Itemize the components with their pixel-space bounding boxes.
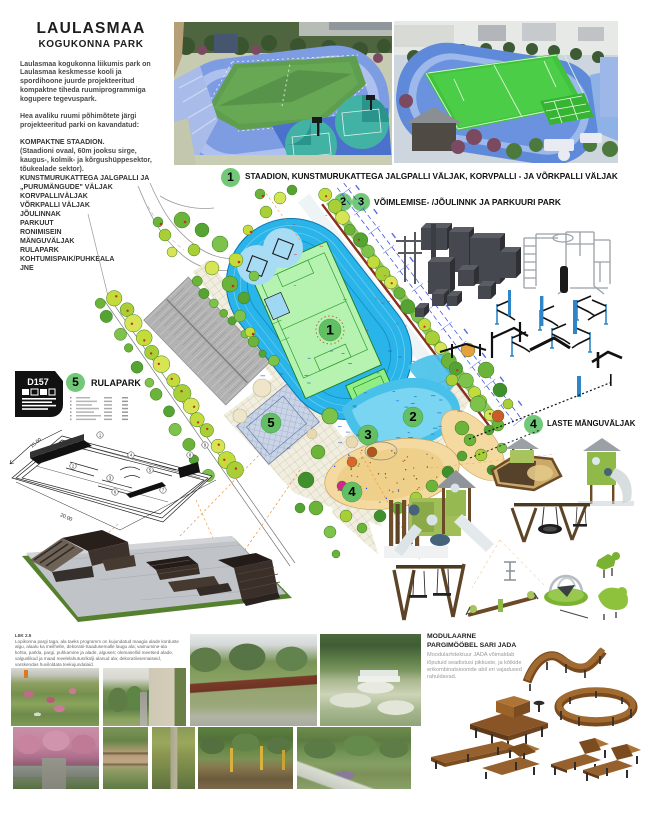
svg-text:15.00: 15.00	[29, 437, 43, 450]
svg-text:4: 4	[348, 484, 356, 499]
svg-text:5: 5	[267, 415, 274, 430]
svg-text:D157: D157	[27, 377, 49, 387]
svg-text:1: 1	[326, 322, 334, 338]
svg-text:3: 3	[364, 427, 371, 442]
svg-text:2: 2	[409, 409, 416, 424]
svg-text:20.00: 20.00	[59, 512, 73, 523]
